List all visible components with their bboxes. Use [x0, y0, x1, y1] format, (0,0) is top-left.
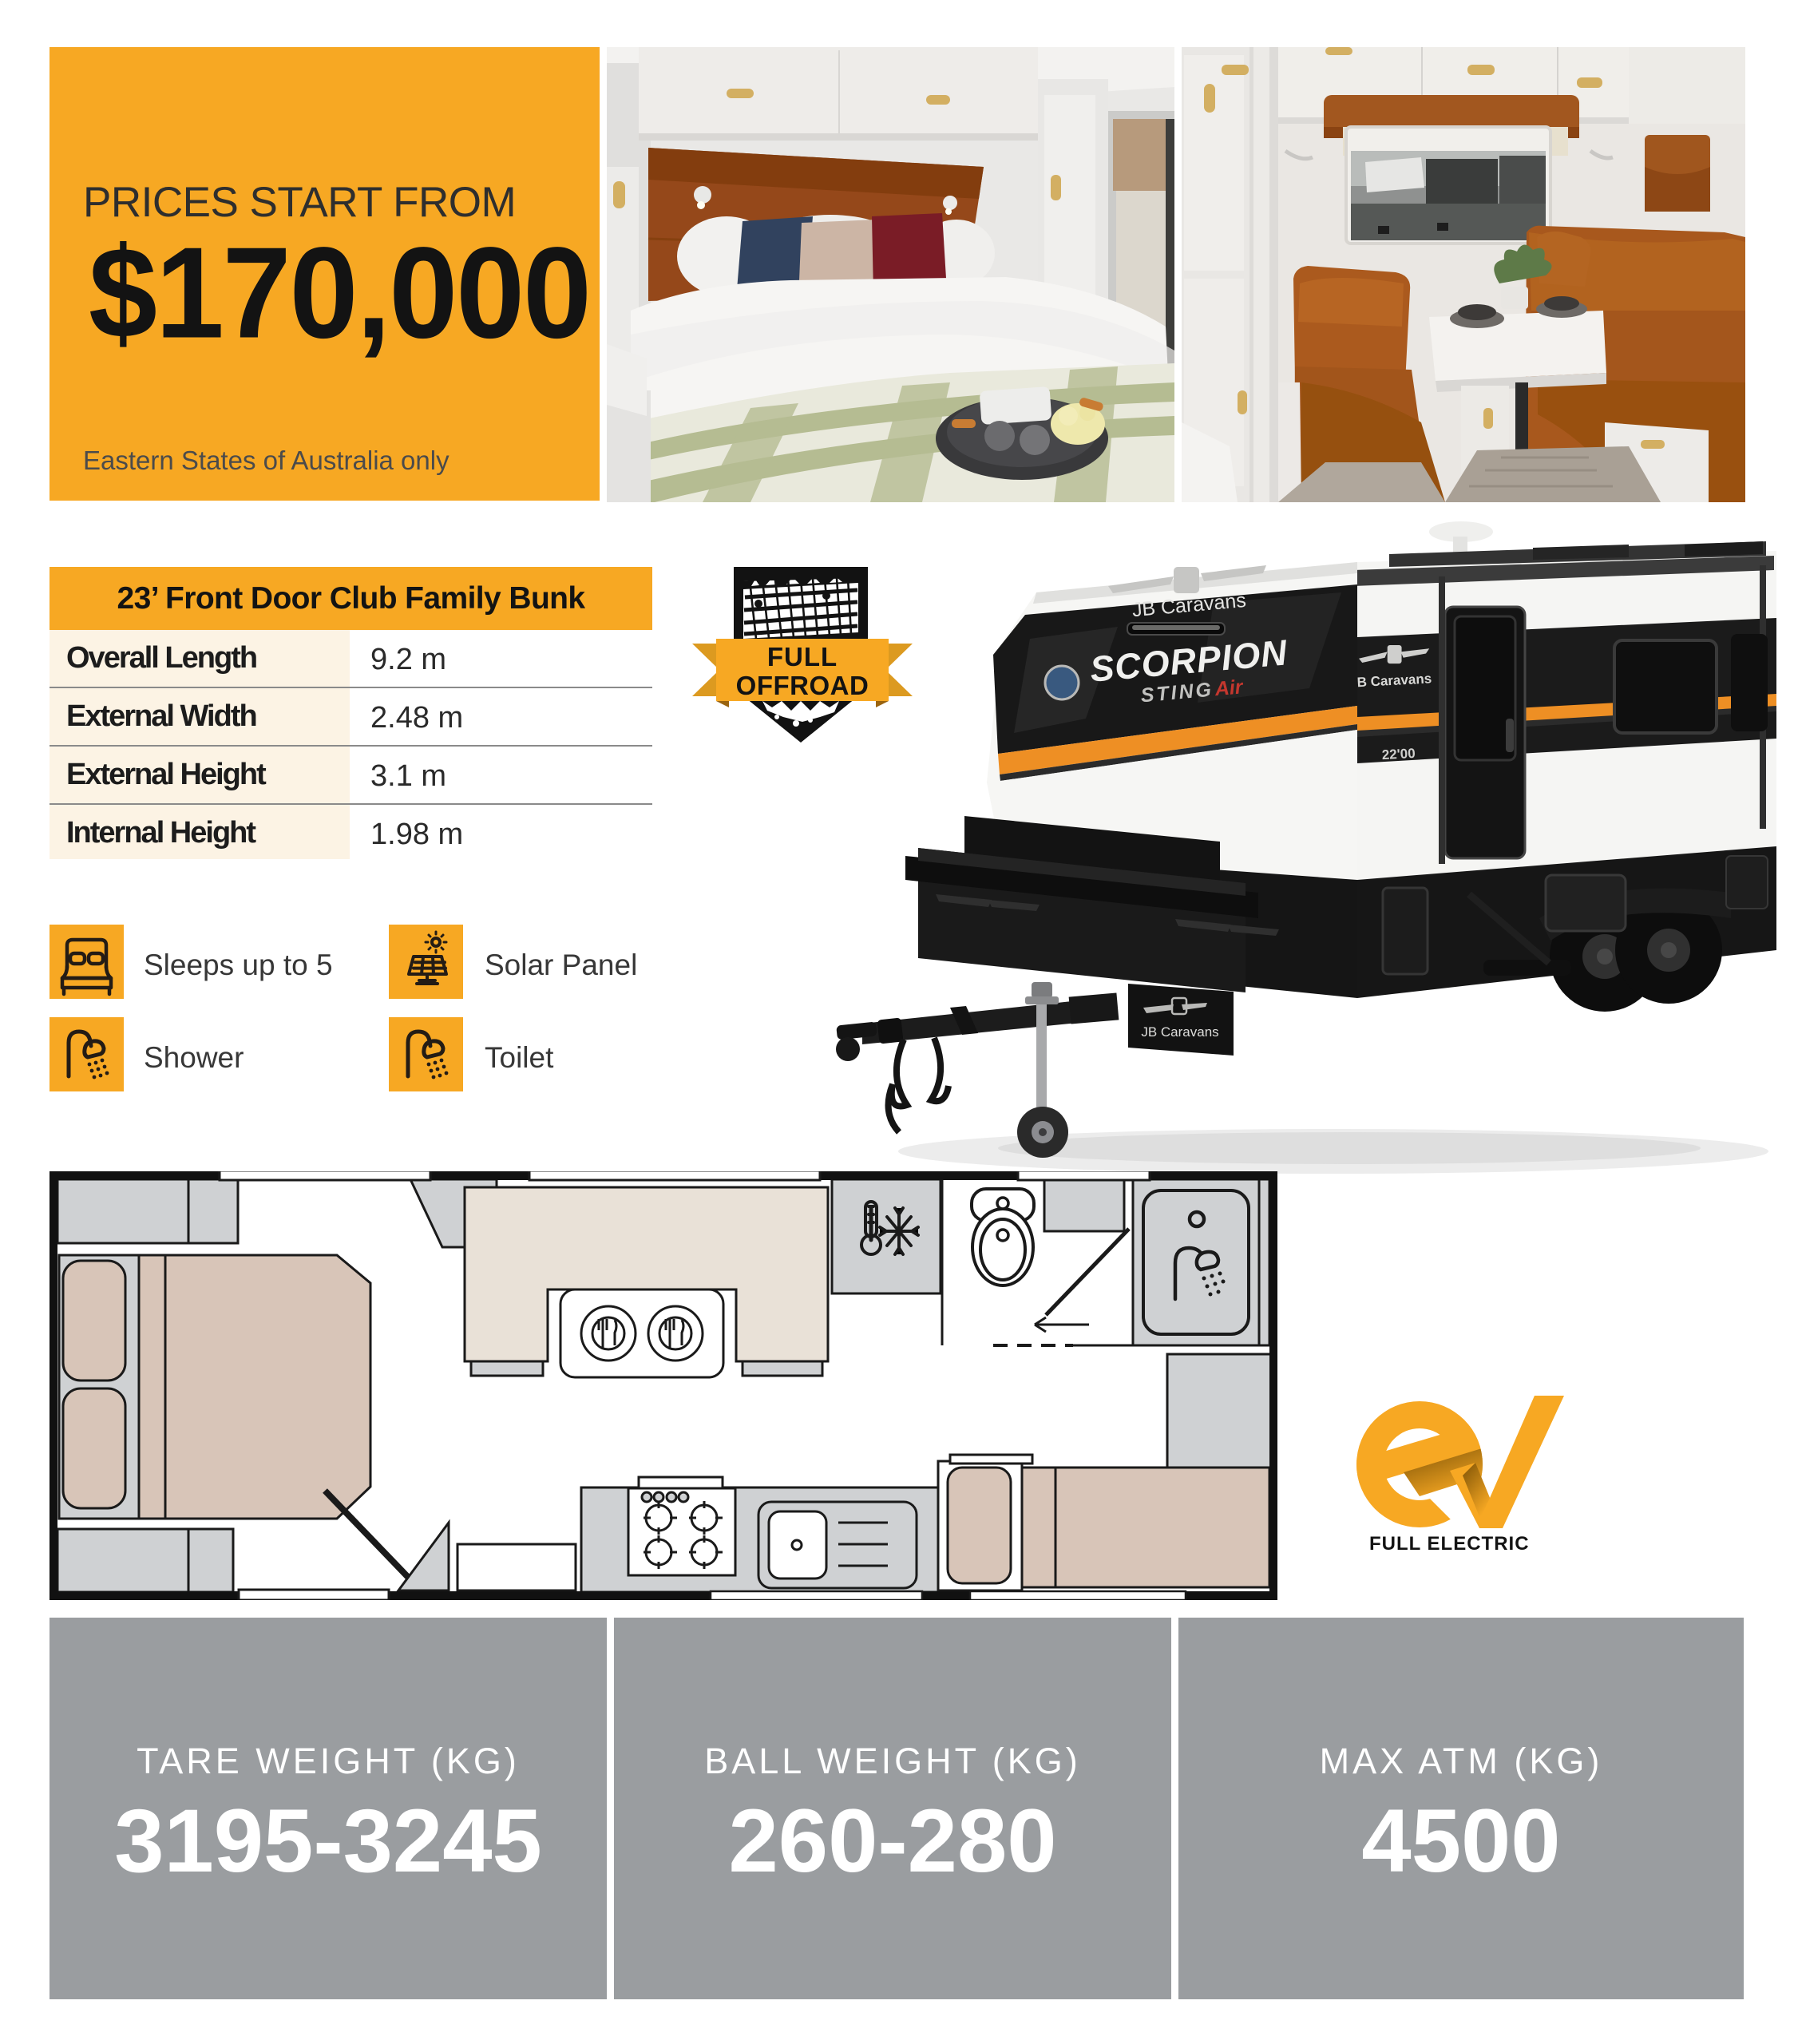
svg-text:FULL ELECTRIC: FULL ELECTRIC: [1369, 1533, 1530, 1555]
svg-text:22'00: 22'00: [1381, 746, 1416, 763]
svg-text:Air: Air: [1214, 675, 1245, 700]
svg-text:FULL: FULL: [767, 642, 838, 671]
svg-text:JB Caravans: JB Caravans: [1141, 1024, 1218, 1040]
